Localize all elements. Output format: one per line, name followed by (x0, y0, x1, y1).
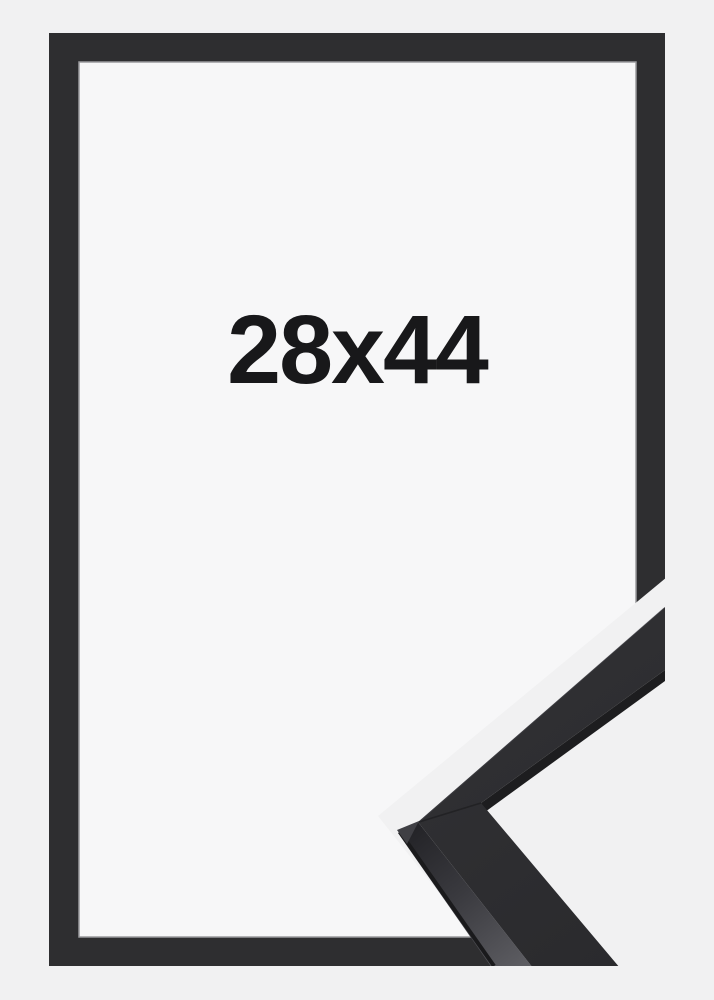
frame-graphic: 28x44 (0, 0, 714, 1000)
size-label: 28x44 (227, 295, 489, 404)
frame-product-image: 28x44 (0, 0, 714, 1000)
